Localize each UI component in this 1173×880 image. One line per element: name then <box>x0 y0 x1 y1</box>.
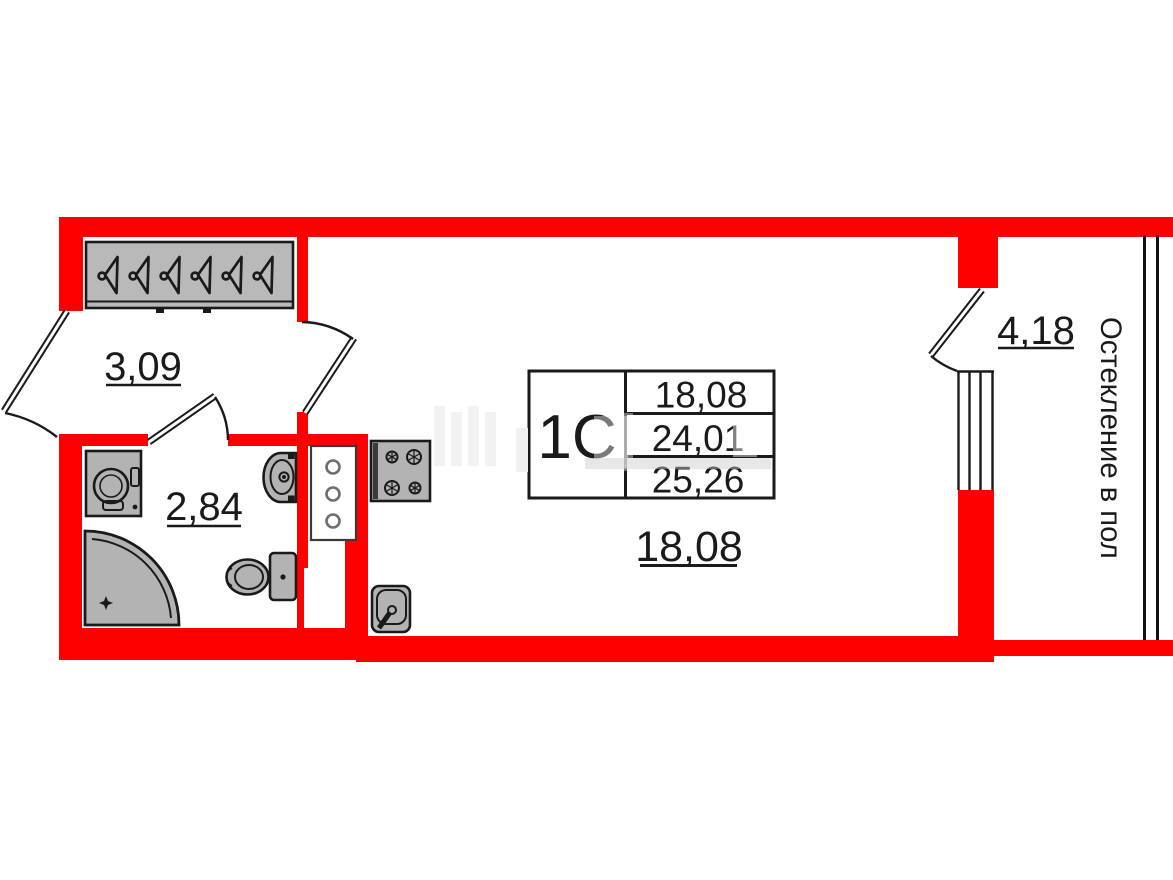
svg-text:4,18: 4,18 <box>997 309 1075 353</box>
svg-text:2,84: 2,84 <box>165 485 243 529</box>
svg-text:18,08: 18,08 <box>635 523 743 571</box>
svg-text:24,01: 24,01 <box>652 418 745 459</box>
svg-text:Остекление в пол: Остекление в пол <box>1094 317 1126 559</box>
svg-text:3,09: 3,09 <box>104 345 182 389</box>
svg-text:18,08: 18,08 <box>655 375 748 416</box>
